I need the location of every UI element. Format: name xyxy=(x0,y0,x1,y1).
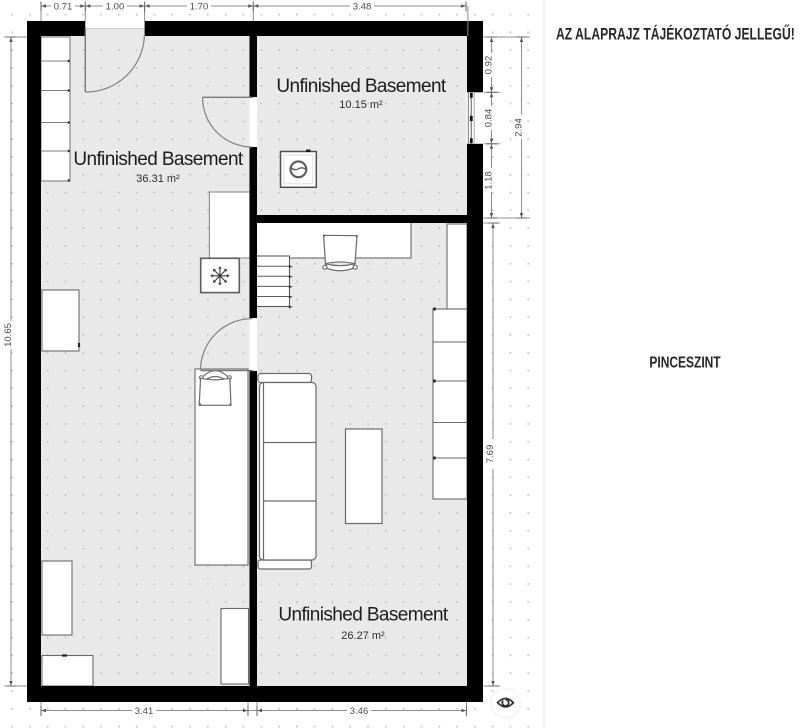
svg-text:1.00: 1.00 xyxy=(106,1,125,12)
svg-text:10.15 m²: 10.15 m² xyxy=(339,99,383,111)
svg-text:Unfinished Basement: Unfinished Basement xyxy=(276,76,447,97)
svg-text:1.18: 1.18 xyxy=(484,171,495,190)
svg-text:0.92: 0.92 xyxy=(484,56,495,75)
svg-text:Unfinished Basement: Unfinished Basement xyxy=(73,149,244,170)
svg-text:Unfinished Basement: Unfinished Basement xyxy=(278,605,449,626)
svg-text:36.31 m²: 36.31 m² xyxy=(136,173,180,185)
svg-text:0.71: 0.71 xyxy=(54,1,73,12)
svg-text:2.94: 2.94 xyxy=(514,118,525,137)
svg-text:3.48: 3.48 xyxy=(353,1,372,12)
svg-text:1.70: 1.70 xyxy=(190,1,209,12)
svg-text:26.27 m²: 26.27 m² xyxy=(341,630,385,642)
svg-text:AZ ALAPRAJZ TÁJÉKOZTATÓ JELLEG: AZ ALAPRAJZ TÁJÉKOZTATÓ JELLEGŰ! xyxy=(556,24,795,44)
svg-text:7.69: 7.69 xyxy=(485,445,496,464)
svg-text:0.84: 0.84 xyxy=(484,109,495,128)
svg-text:PINCESZINT: PINCESZINT xyxy=(649,353,721,371)
svg-text:3.46: 3.46 xyxy=(350,706,369,717)
svg-text:10.65: 10.65 xyxy=(3,323,14,347)
svg-text:3.41: 3.41 xyxy=(135,706,154,717)
